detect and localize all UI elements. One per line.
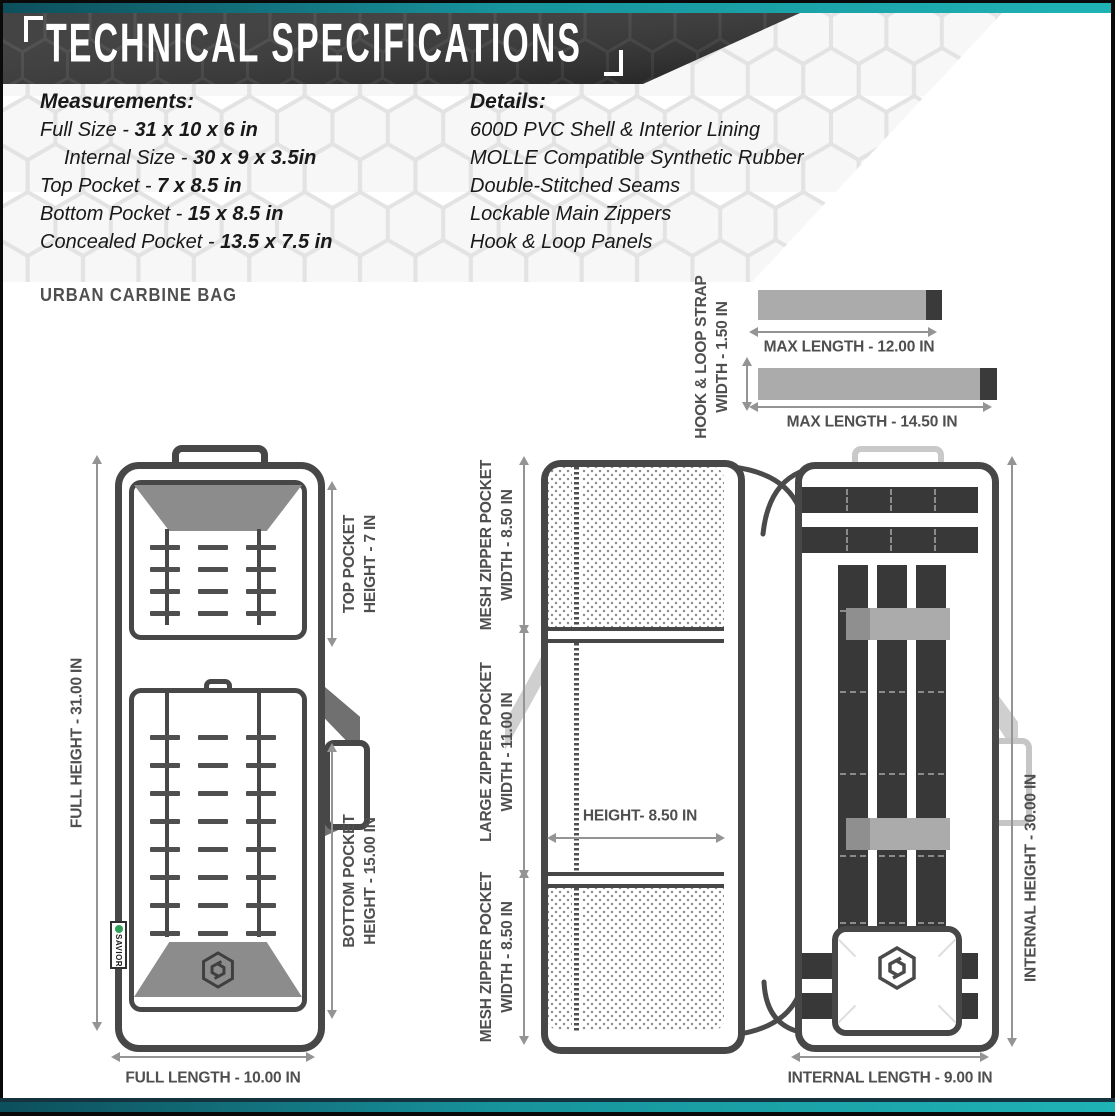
molle-dash xyxy=(198,819,228,824)
front-bottom-pocket xyxy=(129,688,307,1012)
full-height-dimension xyxy=(96,464,98,1022)
measurement-line: Top Pocket - 7 x 8.5 in xyxy=(40,172,460,200)
mesh-bottom-width-dimension xyxy=(523,878,525,1036)
molle-dash xyxy=(246,567,276,572)
molle-dash xyxy=(198,589,228,594)
molle-dash xyxy=(150,589,180,594)
brand-tag-dot-icon xyxy=(115,925,123,933)
molle-strap-top-1 xyxy=(802,487,978,513)
strap-width-label: HOOK & LOOP STRAP WIDTH - 1.50 IN xyxy=(691,275,733,438)
stitch-separator xyxy=(890,529,892,551)
stitch-separator xyxy=(879,855,905,857)
detail-line: 600D PVC Shell & Interior Lining xyxy=(470,116,900,144)
molle-dash xyxy=(198,875,228,880)
strap-short-endcap xyxy=(926,290,942,320)
bottom-pocket-height-label: BOTTOM POCKET HEIGHT - 15.00 IN xyxy=(339,814,381,947)
stitch-separator xyxy=(879,922,905,924)
top-pocket-flap-panel xyxy=(134,485,302,531)
zipper-mesh-bottom xyxy=(572,888,581,1031)
spec-sheet: TECHNICAL SPECIFICATIONS Measurements: F… xyxy=(0,0,1115,1116)
full-length-dimension xyxy=(120,1056,306,1058)
internal-length-dimension xyxy=(800,1056,980,1058)
molle-dash xyxy=(198,611,228,616)
molle-dash xyxy=(246,875,276,880)
measurement-line: Bottom Pocket - 15 x 8.5 in xyxy=(40,200,460,228)
strap-width-dimension xyxy=(746,366,748,402)
strap-short xyxy=(758,290,942,320)
detail-line: MOLLE Compatible Synthetic Rubber xyxy=(470,144,900,172)
stitch-separator xyxy=(840,855,866,857)
frame-left xyxy=(0,0,3,1116)
molle-dash xyxy=(246,589,276,594)
bottom-pocket-height-dimension xyxy=(331,752,333,1010)
measurements-block: Measurements: Full Size - 31 x 10 x 6 in… xyxy=(40,88,460,256)
details-heading: Details: xyxy=(470,88,900,116)
brand-hexagon-logo-icon xyxy=(201,951,235,989)
molle-grid-top-pocket xyxy=(150,545,276,616)
stitch-separator xyxy=(918,773,944,775)
top-pocket-height-dimension xyxy=(331,490,333,638)
measurements-heading: Measurements: xyxy=(40,88,460,116)
frame-bottom xyxy=(0,1112,1115,1116)
title-bracket-top-left xyxy=(24,16,43,42)
molle-dash xyxy=(150,763,180,768)
detail-line: Lockable Main Zippers xyxy=(470,200,900,228)
molle-dash xyxy=(198,847,228,852)
detail-line: Double-Stitched Seams xyxy=(470,172,900,200)
molle-dash xyxy=(150,903,180,908)
molle-dash xyxy=(150,567,180,572)
brand-tag-text: SAVIOR xyxy=(114,934,123,967)
molle-dash xyxy=(198,791,228,796)
bottom-accent-bar xyxy=(0,1102,1115,1112)
measurement-line: Full Size - 31 x 10 x 6 in xyxy=(40,116,460,144)
molle-dash xyxy=(246,763,276,768)
molle-dash xyxy=(198,545,228,550)
mesh-bottom-width-label: MESH ZIPPER POCKET WIDTH - 8.50 IN xyxy=(476,872,518,1042)
frame-right xyxy=(1111,0,1115,1116)
internal-height-label: INTERNAL HEIGHT - 30.00 IN xyxy=(1021,774,1042,982)
open-height-dimension xyxy=(556,837,716,839)
measurement-line: Concealed Pocket - 13.5 x 7.5 in xyxy=(40,228,460,256)
molle-dash xyxy=(246,611,276,616)
stitch-separator xyxy=(846,529,848,551)
mesh-top-width-label: MESH ZIPPER POCKET WIDTH - 8.50 IN xyxy=(476,460,518,630)
molle-dash xyxy=(246,847,276,852)
stitch-separator xyxy=(934,489,936,511)
details-block: Details: 600D PVC Shell & Interior Linin… xyxy=(470,88,900,256)
front-top-pocket xyxy=(129,480,307,640)
molle-dash xyxy=(246,931,276,936)
strap-short-length-label: MAX LENGTH - 12.00 IN xyxy=(764,337,935,358)
molle-dash xyxy=(198,931,228,936)
molle-dash xyxy=(150,791,180,796)
stitch-separator xyxy=(918,855,944,857)
molle-dash xyxy=(198,735,228,740)
stitch-separator xyxy=(934,529,936,551)
padded-logo-block xyxy=(832,926,962,1036)
molle-strap-top-2 xyxy=(802,527,978,553)
page-title: TECHNICAL SPECIFICATIONS xyxy=(46,6,582,83)
molle-dash xyxy=(246,735,276,740)
stitch-separator xyxy=(918,922,944,924)
molle-dash xyxy=(246,545,276,550)
top-accent-bar xyxy=(0,3,1115,13)
brand-tag: SAVIOR xyxy=(110,921,127,969)
large-pocket-width-dimension xyxy=(523,633,525,870)
strap-long-length-label: MAX LENGTH - 14.50 IN xyxy=(787,412,958,433)
internal-height-dimension xyxy=(1011,465,1013,1038)
molle-dash xyxy=(246,819,276,824)
molle-dash xyxy=(198,903,228,908)
large-pocket-width-label: LARGE ZIPPER POCKET WIDTH - 11.00 IN xyxy=(476,662,518,842)
strap-long xyxy=(758,368,997,400)
stitch-separator xyxy=(879,691,905,693)
stitch-separator xyxy=(846,489,848,511)
internal-length-label: INTERNAL LENGTH - 9.00 IN xyxy=(788,1068,993,1089)
detail-line: Hook & Loop Panels xyxy=(470,228,900,256)
molle-dash xyxy=(150,735,180,740)
product-name-label: URBAN CARBINE BAG xyxy=(40,285,237,306)
molle-dash xyxy=(150,875,180,880)
stitch-separator xyxy=(840,773,866,775)
molle-dash xyxy=(150,931,180,936)
bottom-pocket-base-panel xyxy=(134,942,302,997)
molle-dash xyxy=(150,847,180,852)
molle-dash xyxy=(246,791,276,796)
stitch-separator xyxy=(840,691,866,693)
full-length-label: FULL LENGTH - 10.00 IN xyxy=(125,1068,300,1089)
molle-dash xyxy=(150,545,180,550)
molle-dash xyxy=(150,819,180,824)
molle-dash xyxy=(246,903,276,908)
molle-grid-bottom-pocket xyxy=(150,735,276,936)
stitch-separator xyxy=(918,691,944,693)
mesh-top-width-dimension xyxy=(523,465,525,625)
full-height-label: FULL HEIGHT - 31.00 IN xyxy=(67,658,88,828)
strap-long-endcap xyxy=(980,368,997,400)
top-pocket-height-label: TOP POCKET HEIGHT - 7 IN xyxy=(339,515,381,613)
strap-long-length-dimension xyxy=(758,406,983,408)
stitch-separator xyxy=(879,773,905,775)
brand-hexagon-logo-icon xyxy=(877,946,917,990)
molle-dash xyxy=(198,567,228,572)
stitch-separator xyxy=(890,489,892,511)
zipper-mesh-top xyxy=(572,467,581,627)
title-bracket-bottom-right xyxy=(604,50,623,76)
measurement-line: Internal Size - 30 x 9 x 3.5in xyxy=(40,144,460,172)
open-height-label: HEIGHT- 8.50 IN xyxy=(583,806,697,827)
strap-short-length-dimension xyxy=(758,331,928,333)
stitch-separator xyxy=(840,922,866,924)
molle-dash xyxy=(198,763,228,768)
frame-top xyxy=(0,0,1115,3)
molle-dash xyxy=(150,611,180,616)
